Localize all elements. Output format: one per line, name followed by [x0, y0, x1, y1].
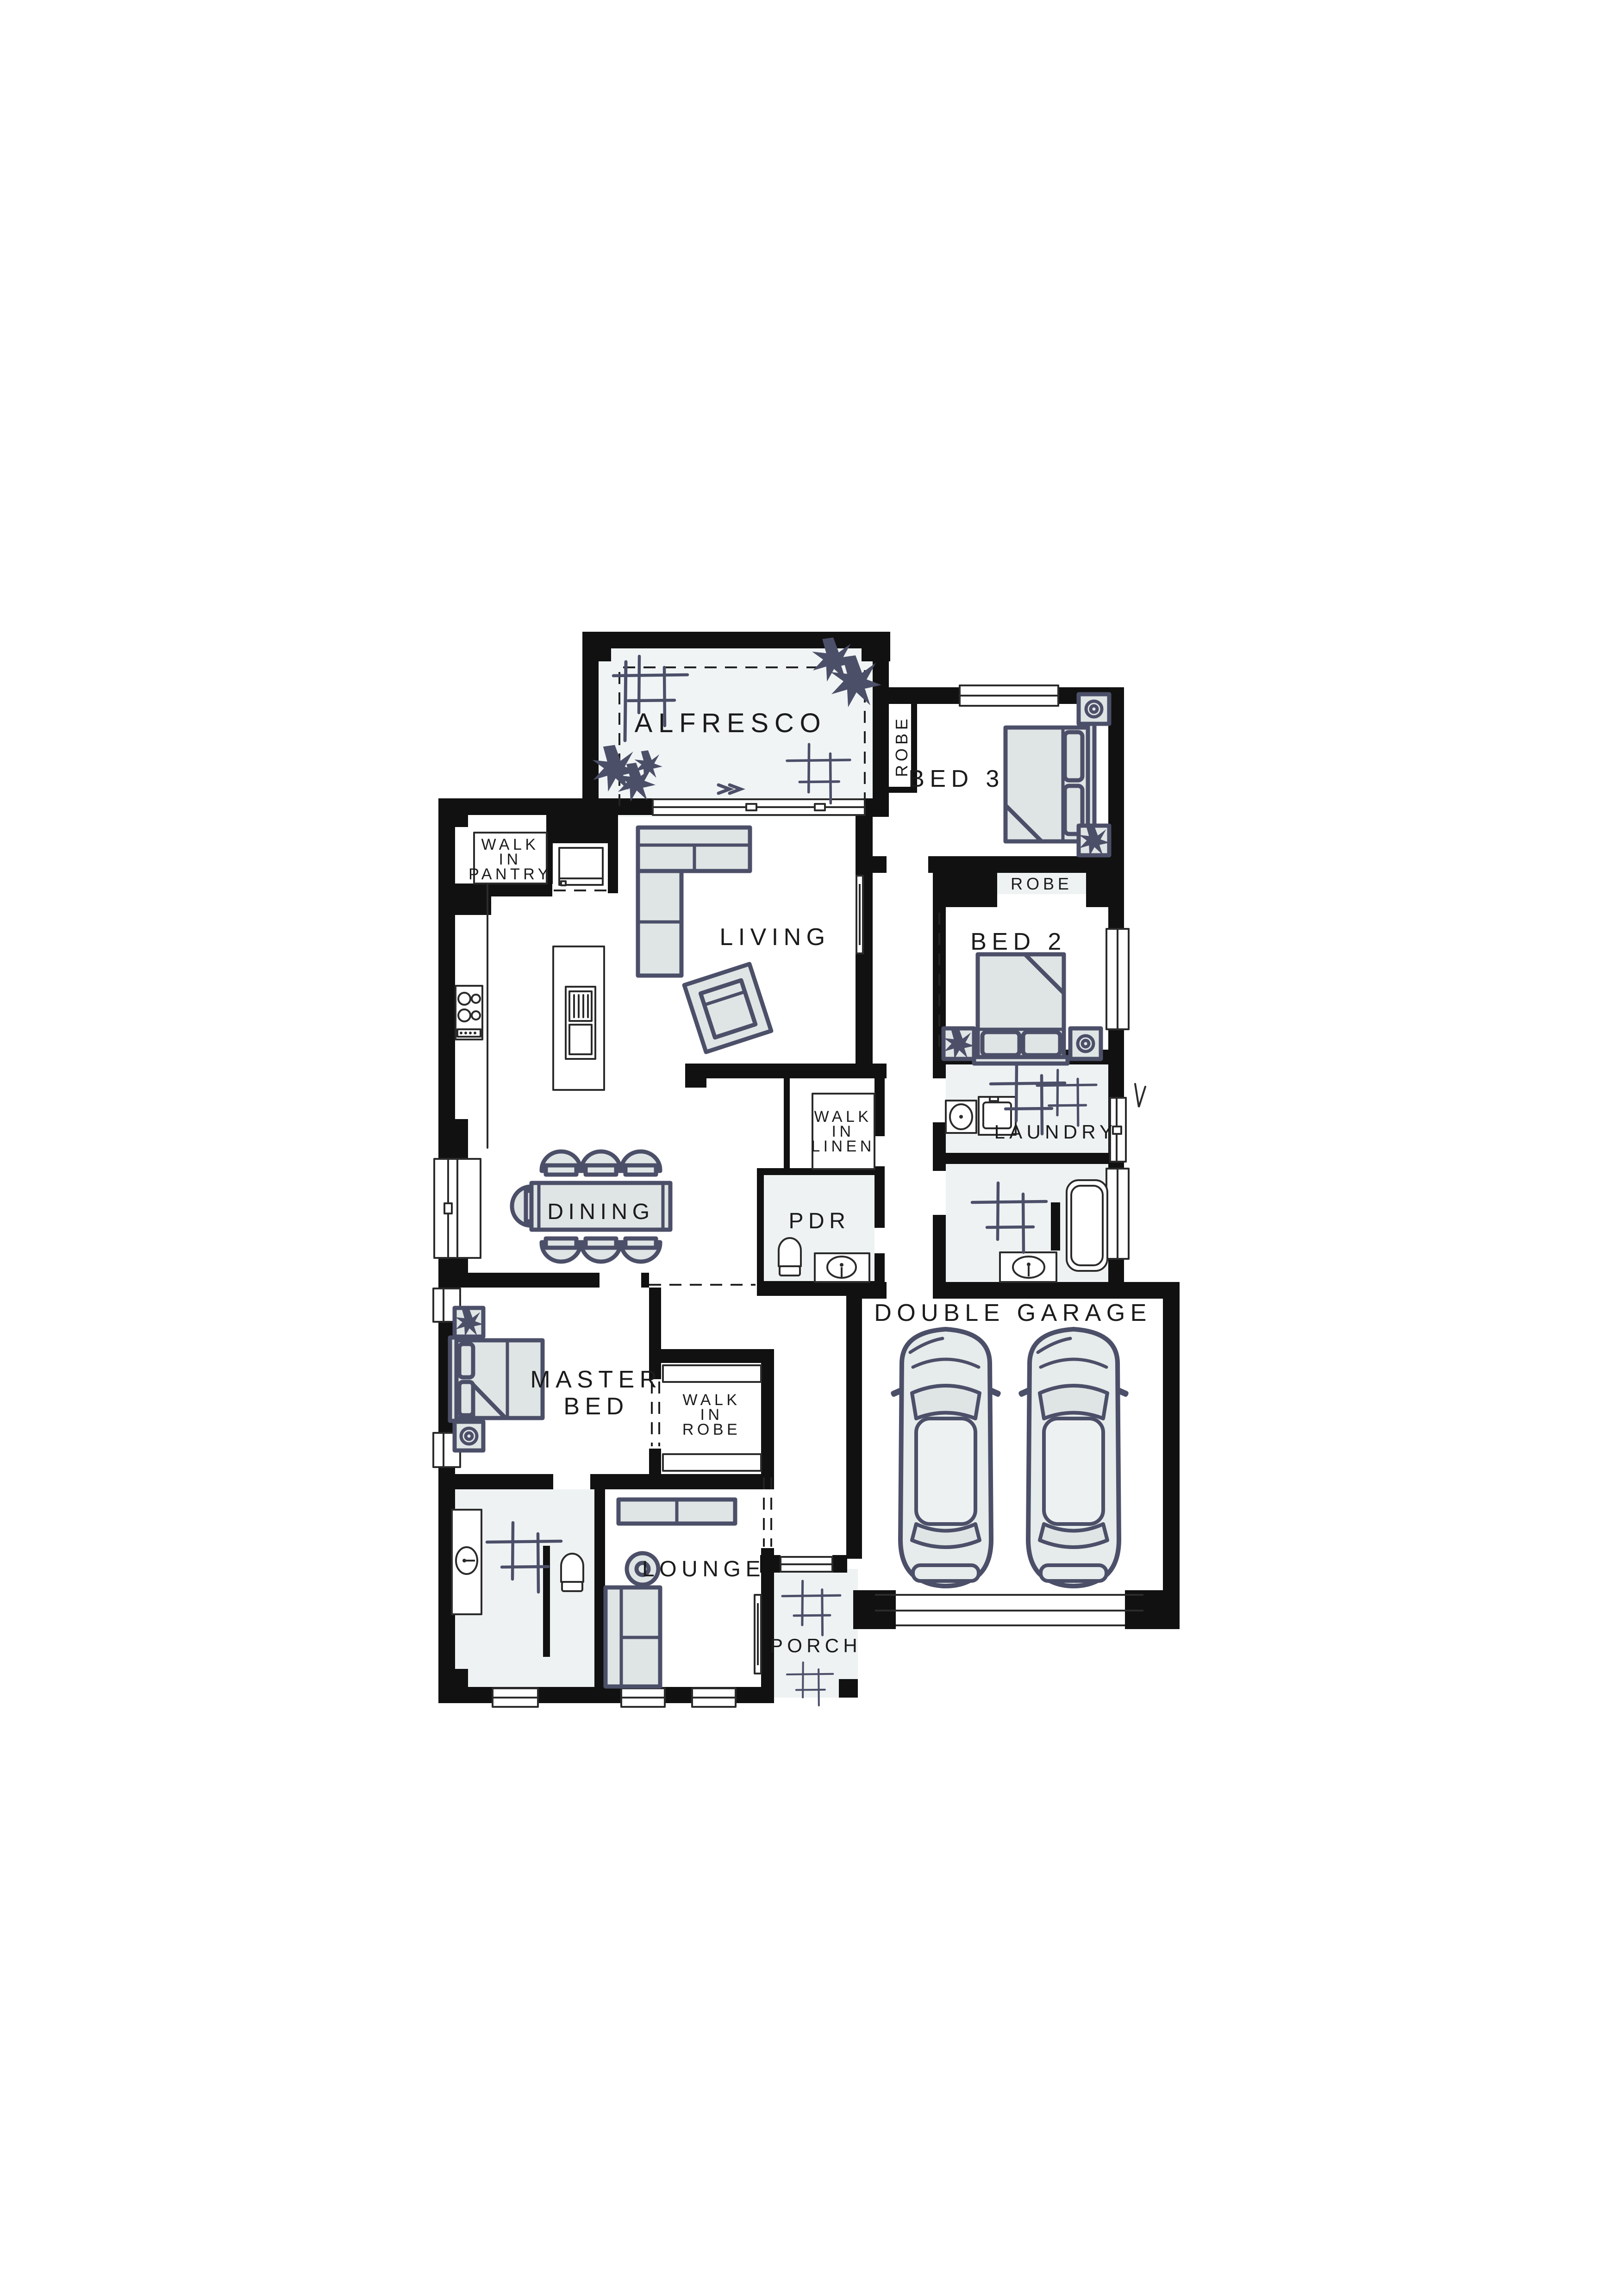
ensuite-toilet-icon [561, 1554, 583, 1591]
dining-label: DINING [547, 1200, 654, 1224]
lounge-tv-icon [755, 1595, 761, 1674]
floor-plan-canvas: ALFRESCO BED 3 ROBE ROBE BED 2 LIVING WA… [0, 0, 1624, 2296]
porch-label: PORCH [770, 1635, 862, 1656]
alfresco-sliding-door [653, 799, 865, 815]
island-bench [553, 946, 604, 1090]
garage-cars [890, 1329, 1130, 1586]
fridge-icon [559, 848, 603, 885]
bed2-window [1106, 929, 1129, 1029]
bed2-robe-label: ROBE [1011, 874, 1073, 893]
bed2-label: BED 2 [970, 928, 1067, 955]
master-label-1: MASTER [530, 1366, 662, 1393]
bed3-furniture [1006, 694, 1110, 856]
cooktop-icon [456, 986, 482, 1039]
bed2-lamp-table [1070, 1028, 1101, 1059]
garage-label: DOUBLE GARAGE [874, 1300, 1152, 1326]
bed3-plant-table [1079, 825, 1110, 856]
porch-floor [774, 1569, 858, 1698]
floor-plan-page: ALFRESCO BED 3 ROBE ROBE BED 2 LIVING WA… [0, 0, 1624, 2296]
master-furniture [450, 1308, 543, 1450]
garage-door [875, 1595, 1143, 1625]
ensuite-window [493, 1688, 538, 1707]
bath-window [1106, 1169, 1129, 1259]
sofa-icon [638, 828, 750, 976]
alfresco-label: ALFRESCO [635, 708, 827, 738]
ensuite-vanity-icon [452, 1510, 481, 1614]
bed2-furniture [943, 954, 1101, 1064]
lounge-furniture [606, 1500, 761, 1686]
bed3-window [960, 685, 1058, 706]
lounge-label: LOUNGE [642, 1557, 765, 1581]
car-icon-2 [1018, 1329, 1130, 1586]
bed3-robe-label: ROBE [892, 715, 911, 777]
master-bed-icon [450, 1338, 543, 1421]
living-label: LIVING [719, 924, 830, 951]
armchair-icon [684, 964, 771, 1052]
master-plant-table [455, 1308, 483, 1337]
bathtub-icon [1067, 1180, 1107, 1271]
lounge-window-1 [621, 1688, 665, 1707]
wir-label-3: ROBE [682, 1421, 741, 1438]
master-label-2: BED [563, 1393, 629, 1420]
master-lamp-table [455, 1422, 483, 1450]
linen-label-3: LINEN [811, 1138, 875, 1155]
front-door [781, 1557, 832, 1572]
pdr-toilet-icon [779, 1238, 801, 1276]
entry-arrow-icon [1135, 1084, 1145, 1107]
bath-vanity-icon [1000, 1252, 1056, 1282]
pdr-vanity-icon [815, 1253, 869, 1282]
laundry-label: LAUNDRY [994, 1121, 1117, 1143]
living-tv-icon [856, 876, 863, 953]
lounge-window-2 [692, 1688, 736, 1707]
bed3-label: BED 3 [908, 765, 1005, 792]
car-icon-1 [890, 1329, 1002, 1586]
laundry-sink-icon [946, 1101, 976, 1133]
bed2-plant-table [943, 1028, 974, 1059]
pantry-label-3: PANTRY [468, 865, 552, 883]
pdr-label: PDR [788, 1209, 850, 1233]
bed3-lamp-table [1079, 694, 1109, 724]
bed2-bed-icon [974, 954, 1068, 1064]
dining-sliding-door [434, 1159, 481, 1258]
lounge-sofa-icon [606, 1587, 660, 1686]
console-table [618, 1500, 735, 1524]
bath-stub-wall [1051, 1202, 1060, 1251]
